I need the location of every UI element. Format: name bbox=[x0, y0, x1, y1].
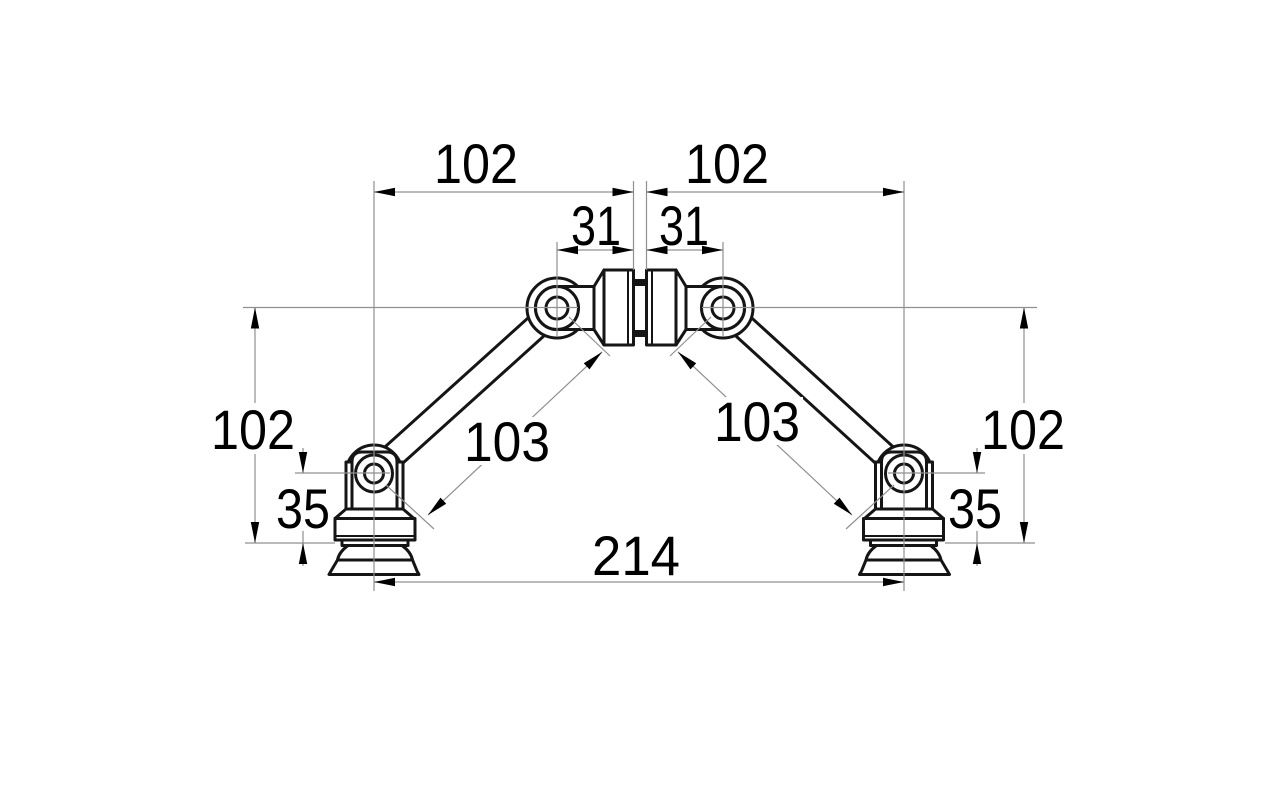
dim-label-left-height: 102 bbox=[211, 398, 295, 461]
dim-label-right-height: 102 bbox=[981, 398, 1065, 461]
dim-label-overall-width: 214 bbox=[592, 524, 680, 587]
left-block bbox=[604, 270, 634, 345]
dim-label-top-right-span: 102 bbox=[685, 132, 769, 195]
drawing-canvas: 102 102 31 31 102 35 102 35 103 103 214 bbox=[0, 0, 1280, 799]
dim-label-hub-right-span: 31 bbox=[659, 194, 709, 257]
technical-drawing: 102 102 31 31 102 35 102 35 103 103 214 bbox=[0, 0, 1280, 799]
dim-label-right-arm-length: 103 bbox=[714, 390, 800, 453]
dim-label-hub-left-span: 31 bbox=[571, 194, 621, 257]
dim-label-top-left-span: 102 bbox=[434, 132, 518, 195]
center-link-bar-top bbox=[634, 279, 647, 286]
dim-label-left-arm-length: 103 bbox=[464, 410, 550, 473]
right-block bbox=[647, 270, 677, 345]
center-link-bar-bottom bbox=[634, 330, 647, 337]
left-cup-upper-skirt bbox=[338, 546, 413, 561]
dim-label-left-foot-height: 35 bbox=[276, 477, 330, 540]
dim-label-right-foot-height: 35 bbox=[948, 477, 1002, 540]
